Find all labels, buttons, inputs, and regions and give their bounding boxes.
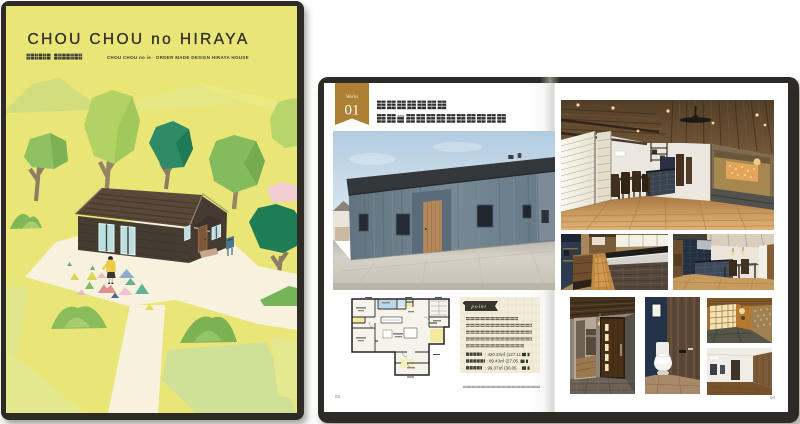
- svg-text:point: point: [470, 304, 486, 310]
- svg-text:: 99.37㎡ (30.05: : 99.37㎡ (30.05: [485, 365, 517, 371]
- svg-text:CHOU CHOU no ie · ORDER MADE D: CHOU CHOU no ie · ORDER MADE DESIGN HIRA…: [107, 55, 249, 60]
- svg-text:: 89.43㎡ (27.05: : 89.43㎡ (27.05: [487, 358, 519, 364]
- svg-text:Works: Works: [346, 95, 358, 100]
- svg-text:: 420.23㎡ (127.11: : 420.23㎡ (127.11: [485, 351, 522, 357]
- svg-text:01: 01: [345, 103, 360, 119]
